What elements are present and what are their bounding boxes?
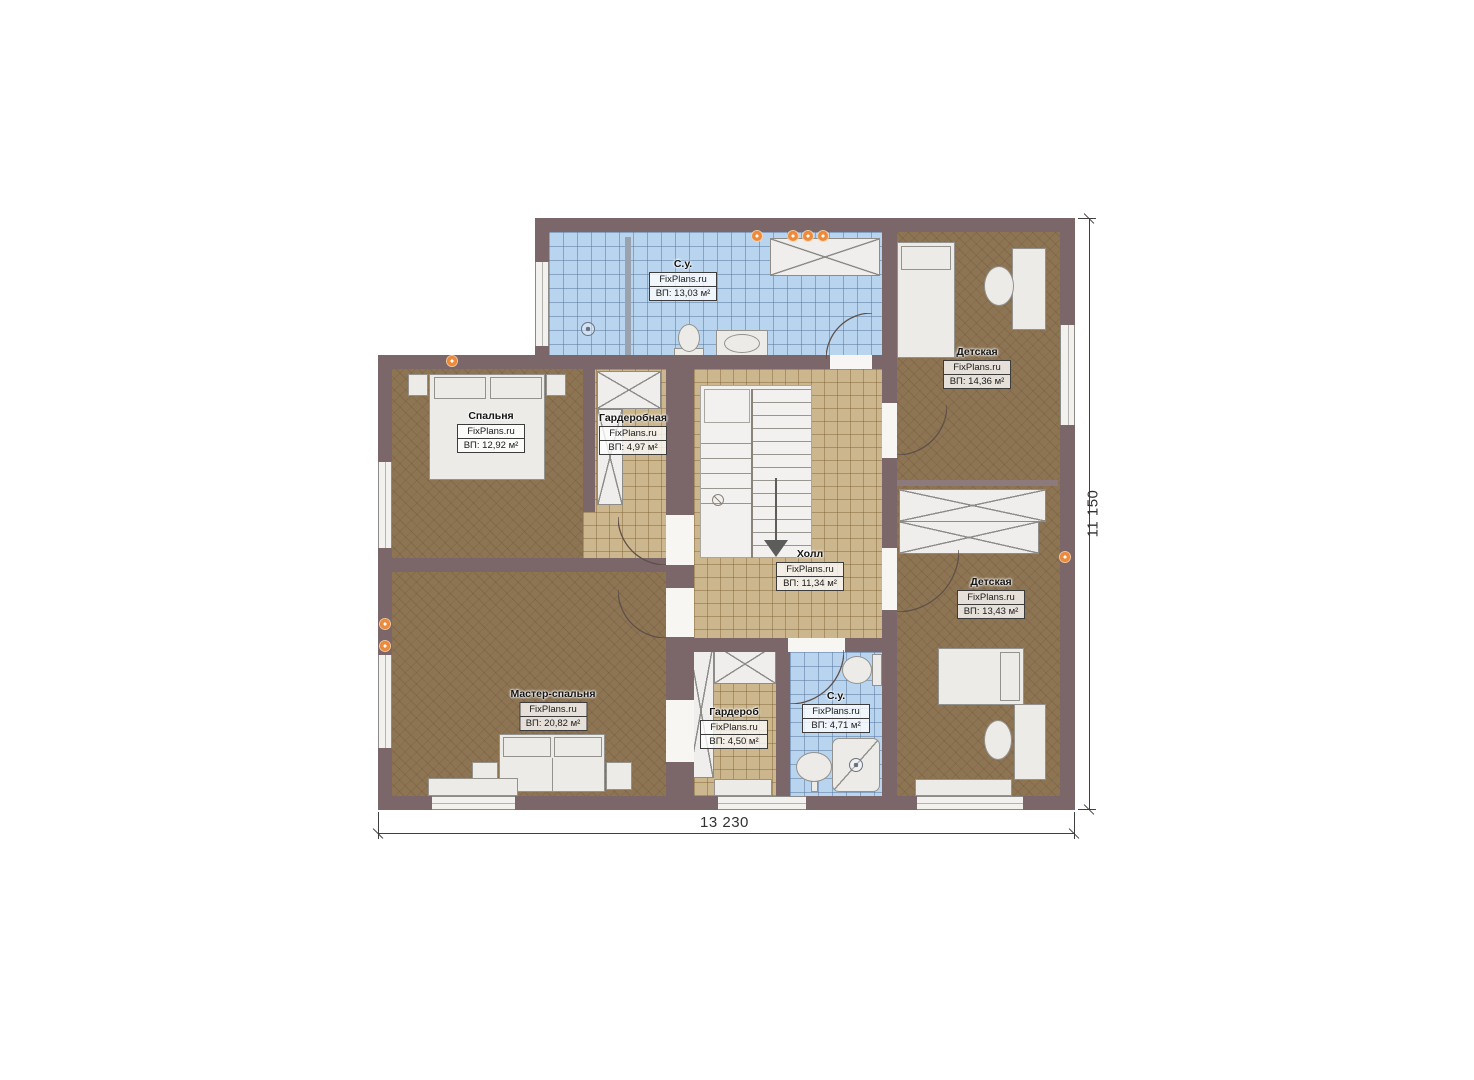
window: [535, 262, 549, 346]
room-area-box: FixPlans.ru ВП: 14,36 м²: [943, 360, 1011, 389]
sink: [724, 334, 760, 353]
room-area-box: FixPlans.ru ВП: 4,97 м²: [599, 426, 667, 455]
wall: [1060, 218, 1075, 810]
stair-railing: [751, 389, 753, 558]
toilet: [842, 656, 872, 684]
vent-icon: [818, 231, 828, 241]
watermark: FixPlans.ru: [803, 705, 869, 718]
room-label-walkin-closet: Гардеробная FixPlans.ru ВП: 4,97 м²: [599, 412, 667, 455]
stair-treads-lower: [701, 443, 752, 505]
door-arc: [618, 590, 666, 638]
watermark: FixPlans.ru: [777, 563, 843, 576]
window: [718, 796, 806, 810]
watermark: FixPlans.ru: [650, 273, 716, 286]
dimension-line-bottom: [378, 833, 1075, 834]
nightstand: [408, 374, 428, 396]
wall: [776, 652, 790, 796]
watermark: FixPlans.ru: [600, 427, 666, 440]
room-area-box: FixPlans.ru ВП: 12,92 м²: [457, 424, 525, 453]
pillow: [554, 737, 602, 757]
watermark: FixPlans.ru: [458, 425, 524, 438]
vent-icon: [447, 356, 457, 366]
door-arc: [897, 550, 959, 612]
nightstand: [546, 374, 566, 396]
radiator: [714, 779, 772, 796]
room-area-box: FixPlans.ru ВП: 11,34 м²: [776, 562, 844, 591]
chair: [984, 720, 1012, 760]
room-label-bedroom: Спальня FixPlans.ru ВП: 12,92 м²: [457, 410, 525, 453]
room-label-bathroom-bottom: С.у. FixPlans.ru ВП: 4,71 м²: [802, 690, 870, 733]
room-area: ВП: 13,03 м²: [650, 286, 716, 300]
pillow: [490, 377, 542, 399]
vent-icon: [1060, 552, 1070, 562]
stair-treads: [752, 389, 811, 557]
vent-icon: [380, 619, 390, 629]
desk: [1012, 248, 1046, 330]
room-label-bathroom-top: С.у. FixPlans.ru ВП: 13,03 м²: [649, 258, 717, 301]
dimension-width: 13 230: [700, 814, 749, 831]
door-opening: [666, 588, 694, 637]
room-name: Детская: [970, 576, 1011, 588]
room-area: ВП: 12,92 м²: [458, 438, 524, 452]
room-area-box: FixPlans.ru ВП: 4,50 м²: [700, 720, 768, 749]
room-name: Гардеробная: [599, 412, 667, 424]
stair-landing: [704, 389, 750, 423]
closet: [770, 238, 880, 276]
room-name: Детская: [956, 346, 997, 358]
watermark: FixPlans.ru: [944, 361, 1010, 374]
pillow: [901, 246, 951, 270]
room-name: Гардероб: [709, 706, 759, 718]
room-name: Спальня: [468, 410, 513, 422]
drain-icon: [581, 322, 595, 336]
room-area-box: FixPlans.ru ВП: 20,82 м²: [519, 702, 587, 731]
shower-partition: [625, 237, 631, 355]
toilet-tank: [872, 654, 882, 686]
pillow: [1000, 652, 1020, 701]
room-area: ВП: 4,71 м²: [803, 718, 869, 732]
window: [432, 796, 515, 810]
room-area: ВП: 11,34 м²: [777, 576, 843, 590]
toilet: [678, 324, 700, 352]
radiator: [915, 779, 1012, 796]
wall: [535, 218, 1075, 232]
room-label-child-bottom: Детская FixPlans.ru ВП: 13,43 м²: [957, 576, 1025, 619]
door-opening: [882, 548, 897, 610]
room-name: С.у.: [674, 258, 692, 270]
chair: [984, 266, 1014, 306]
floor-plan: С.у. FixPlans.ru ВП: 13,03 м² Детская Fi…: [0, 0, 1474, 1080]
wall: [897, 480, 1058, 486]
closet: [597, 371, 661, 409]
room-name: С.у.: [827, 690, 845, 702]
room-label-wardrobe: Гардероб FixPlans.ru ВП: 4,50 м²: [700, 706, 768, 749]
pillow: [503, 737, 551, 757]
room-label-master-bedroom: Мастер-спальня FixPlans.ru ВП: 20,82 м²: [510, 688, 595, 731]
dimension-height: 11 150: [1085, 484, 1102, 544]
pillow: [434, 377, 486, 399]
room-name: Мастер-спальня: [510, 688, 595, 700]
vent-icon: [788, 231, 798, 241]
nightstand: [606, 762, 632, 790]
door-opening: [882, 403, 897, 458]
vent-icon: [752, 231, 762, 241]
room-area-box: FixPlans.ru ВП: 4,71 м²: [802, 704, 870, 733]
room-area: ВП: 14,36 м²: [944, 374, 1010, 388]
room-area-box: FixPlans.ru ВП: 13,03 м²: [649, 272, 717, 301]
desk: [1014, 704, 1046, 780]
wall: [583, 369, 595, 512]
watermark: FixPlans.ru: [520, 703, 586, 716]
stairs-down-arrow-icon: [775, 478, 777, 540]
drain-icon: [849, 758, 863, 772]
room-area: ВП: 20,82 м²: [520, 716, 586, 730]
window: [1060, 325, 1075, 425]
watermark: FixPlans.ru: [958, 591, 1024, 604]
vent-icon: [380, 641, 390, 651]
door-arc: [897, 405, 947, 455]
sink-pedestal: [811, 781, 818, 792]
room-label-child-top: Детская FixPlans.ru ВП: 14,36 м²: [943, 346, 1011, 389]
window: [378, 655, 392, 748]
door-opening: [666, 515, 694, 565]
stair-newel-icon: [712, 494, 724, 506]
wall: [882, 232, 897, 796]
room-area: ВП: 4,50 м²: [701, 734, 767, 748]
room-name: Холл: [797, 548, 823, 560]
sink: [796, 752, 832, 782]
room-area: ВП: 13,43 м²: [958, 604, 1024, 618]
watermark: FixPlans.ru: [701, 721, 767, 734]
radiator: [428, 778, 518, 796]
room-area: ВП: 4,97 м²: [600, 440, 666, 454]
room-label-hall: Холл FixPlans.ru ВП: 11,34 м²: [776, 548, 844, 591]
door-opening: [666, 700, 694, 762]
mattress-divider: [552, 758, 553, 791]
door-arc: [826, 313, 872, 359]
window: [917, 796, 1023, 810]
closet: [899, 489, 1046, 522]
vent-icon: [803, 231, 813, 241]
window: [378, 462, 392, 548]
door-arc: [618, 517, 666, 565]
room-area-box: FixPlans.ru ВП: 13,43 м²: [957, 590, 1025, 619]
wall: [378, 355, 549, 369]
